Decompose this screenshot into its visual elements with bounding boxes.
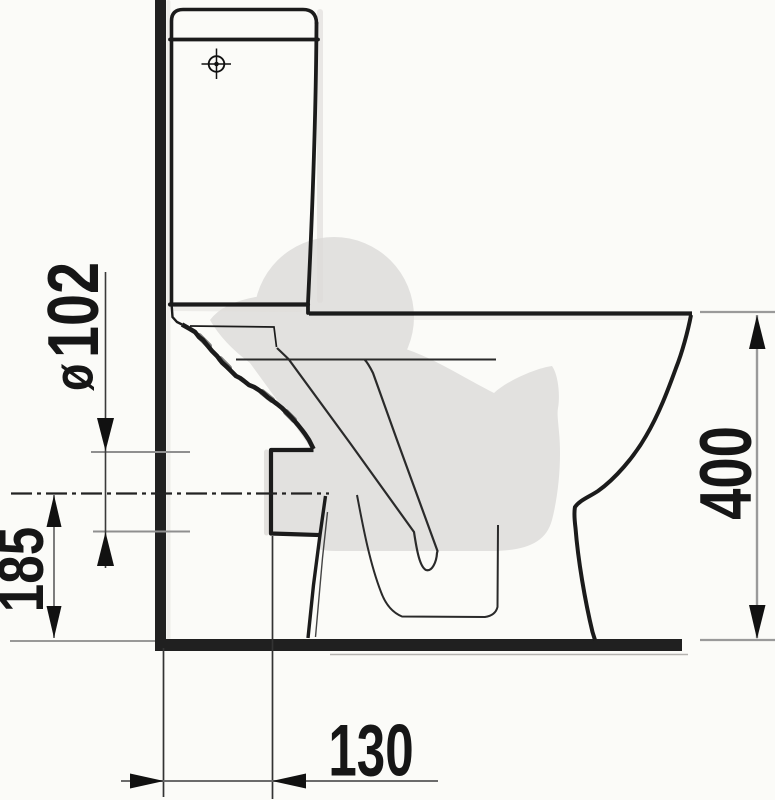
svg-text:130: 130 (328, 710, 413, 791)
svg-text:ø102: ø102 (32, 262, 113, 391)
svg-text:185: 185 (0, 527, 57, 612)
svg-text:400: 400 (685, 426, 767, 520)
